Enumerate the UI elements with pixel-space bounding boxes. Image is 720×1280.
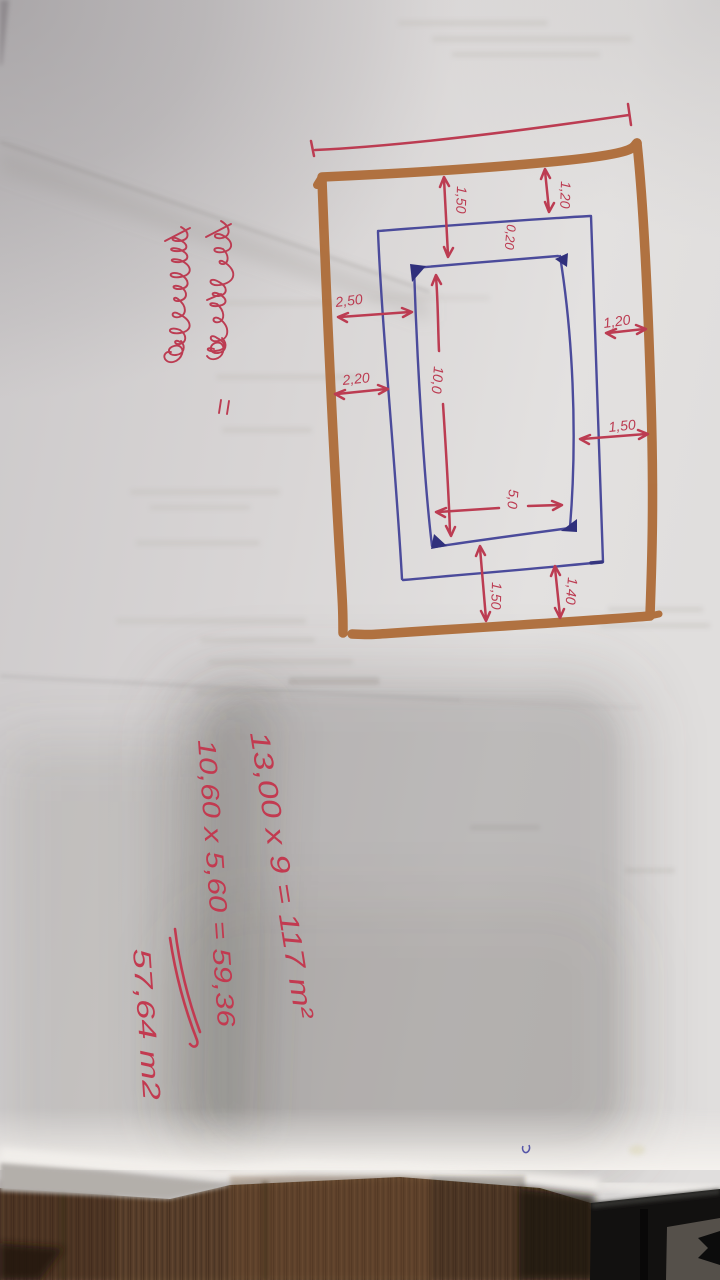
svg-text:1,50: 1,50 [453,186,470,214]
svg-text:1,50: 1,50 [488,582,505,610]
svg-text:5,0: 5,0 [504,489,522,510]
svg-text:2,20: 2,20 [341,369,371,388]
svg-text:1,20: 1,20 [557,181,574,209]
svg-text:0,20: 0,20 [502,224,519,251]
svg-text:10,0: 10,0 [429,366,447,395]
svg-text:1,40: 1,40 [563,577,581,606]
svg-text:1,50: 1,50 [608,416,637,435]
